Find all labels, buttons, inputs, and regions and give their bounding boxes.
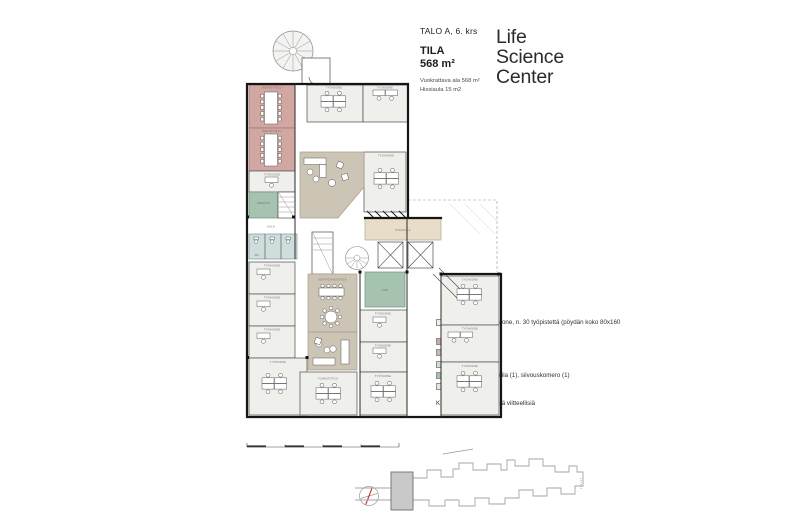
site-building-outline (355, 449, 583, 510)
room-label: VAR (382, 289, 388, 292)
room-label: AULA (267, 226, 275, 229)
spiral-stair-icon (346, 247, 369, 270)
room-tyohuone (441, 325, 499, 362)
room-label: TOIMISTOTILA (318, 378, 338, 381)
conference-table (261, 92, 281, 124)
room-varasto (249, 192, 278, 218)
room-label: HISSIAULA (395, 229, 410, 232)
room-label: TYÖHUONE (378, 155, 394, 158)
site-highlight-talo-a (391, 472, 413, 510)
life-science-center-logo: Life Science Center (496, 28, 564, 88)
room-label: VARASTO (257, 202, 270, 205)
room-label: KEITTIÖ/TAUKOTILA (318, 279, 346, 282)
page: TALO A, 6. krs TILA 568 m² Vuokrattava a… (0, 0, 786, 524)
room-label: TYÖHUONE (377, 87, 393, 90)
site-plan-svg (355, 442, 585, 517)
logo-line: Life (496, 28, 564, 48)
room-label: TYÖHUONE (462, 365, 478, 368)
room-label: NEUVOTTELU (262, 130, 281, 133)
room-keittio (308, 274, 357, 332)
room-label: TYÖHUONE (264, 265, 280, 268)
room-label: TYÖHUONE (462, 328, 478, 331)
floor-plan-svg: NEUVOTTELU NEUVOTTELU TYÖHUONE TYÖHUONE … (245, 22, 505, 457)
room-label: NEUVOTTELU (262, 87, 281, 90)
room-vestibule (302, 58, 330, 84)
logo-line: Center (496, 68, 564, 88)
room-label: TYÖHUONE (375, 313, 391, 316)
room-label: TYÖHUONE (375, 375, 391, 378)
room-label: TYÖHUONE (375, 345, 391, 348)
site-street-label-line (443, 449, 473, 454)
room-tyohuone (441, 362, 499, 415)
room-label: WC (255, 254, 260, 257)
floor-plan: NEUVOTTELU NEUVOTTELU TYÖHUONE TYÖHUONE … (246, 31, 501, 447)
logo-line: Science (496, 48, 564, 68)
room-label: TYÖHUONE (264, 297, 280, 300)
room-label: TYÖHUONE (326, 87, 342, 90)
room-label: TYÖHUONE (462, 279, 478, 282)
room-label: TYÖHUONE (270, 361, 286, 364)
room-tyohuone (441, 276, 499, 325)
compass-icon (360, 487, 379, 506)
room-label: TYÖHUONE (264, 329, 280, 332)
room-label: TYÖHUONE (264, 174, 280, 177)
conference-table (261, 134, 281, 166)
